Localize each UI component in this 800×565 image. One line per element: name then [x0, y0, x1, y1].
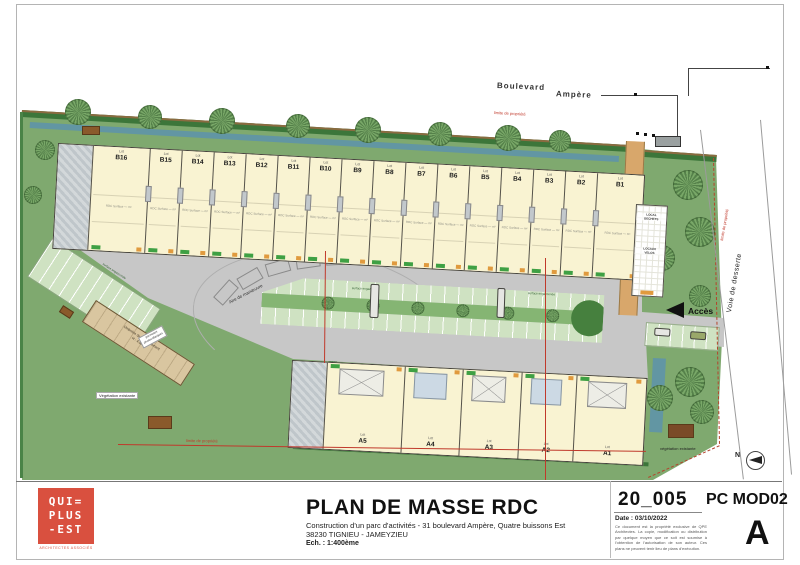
copyright-disclaimer: Ce document est la propriété exclusive d… [615, 524, 707, 551]
tree-icon [675, 367, 705, 397]
tree-icon [673, 170, 703, 200]
titleblock-separator [16, 481, 782, 482]
mezzanine-box [587, 381, 627, 409]
tree-icon [647, 385, 673, 411]
door-orange [200, 251, 205, 255]
annotation-dot [634, 93, 637, 96]
entrance-green [580, 377, 589, 381]
door-orange [168, 249, 173, 253]
door-orange [264, 254, 269, 258]
lot-unit-a4: LotA4 [400, 367, 462, 456]
project-description: Construction d'un parc d'activités - 31 … [306, 521, 565, 530]
property-line-mid-2 [545, 258, 546, 480]
stair-shaft [560, 209, 567, 225]
door-orange [513, 373, 518, 377]
mezzanine-box [413, 372, 447, 399]
document-date: Date : 03/10/2022 [615, 515, 667, 522]
existing-unit [289, 361, 327, 449]
entrance-green [212, 252, 221, 256]
entrance-green [500, 267, 509, 271]
door-orange [568, 376, 573, 380]
door-orange [636, 379, 641, 383]
architect-logo: QUI= PLUS -EST [38, 488, 94, 544]
truck-vehicle [369, 284, 379, 318]
median-tree-icon [411, 301, 425, 315]
door-orange [397, 367, 402, 371]
tree-icon [355, 117, 381, 143]
door-orange [552, 270, 557, 274]
door-orange [454, 370, 459, 374]
stair-shaft [528, 207, 535, 223]
north-label: N [735, 452, 740, 459]
drawing-title: PLAN DE MASSE RDC [306, 496, 539, 520]
stair-shaft [273, 193, 280, 209]
shed-box [148, 416, 172, 429]
stair-shaft [209, 190, 216, 206]
lot-unit-a2: LotA2 [517, 373, 576, 462]
vegetation-label-2: végétation existante [660, 446, 696, 451]
entrance-green [331, 364, 340, 368]
entrance-green [244, 253, 253, 257]
door-orange [424, 263, 429, 267]
median-tree-icon [456, 304, 470, 318]
annotation-line [677, 95, 678, 139]
stair-shaft [305, 195, 312, 211]
street-name-2: Ampère [556, 89, 592, 100]
entrance-green [409, 368, 418, 372]
entrance-green [596, 272, 605, 276]
titleblock-divider-h [614, 512, 702, 513]
stair-shaft [241, 191, 248, 207]
tree-icon [65, 99, 91, 125]
door-orange [488, 266, 493, 270]
stair-shaft [401, 200, 408, 216]
entrance-green [436, 264, 445, 268]
tree-icon [549, 130, 571, 152]
hedge-left [20, 112, 23, 478]
architect-logo-tagline: ARCHITECTES ASSOCIÉS [38, 546, 94, 550]
tree-icon [690, 400, 714, 424]
entrance-green [525, 374, 534, 378]
mezzanine-box [339, 368, 385, 396]
gate-dot [644, 133, 647, 136]
stair-shaft [145, 186, 152, 202]
shed-box [82, 126, 100, 135]
lot-unit-a5: LotA5 [323, 363, 405, 453]
access-arrow-icon [666, 302, 684, 318]
entrance-green [404, 262, 413, 266]
entrance-green [276, 255, 285, 259]
technical-rooms: LOCALDECHETS LOCAUXVELOS [631, 204, 668, 298]
tree-icon [495, 125, 521, 151]
project-location: 38230 TIGNIEU - JAMEYZIEU [306, 530, 408, 539]
entrance-green [564, 271, 573, 275]
lot-unit-a3: LotA3 [458, 370, 521, 459]
entrance-green [372, 260, 381, 264]
entrance-green [91, 245, 100, 249]
east-parking-strip [644, 322, 719, 351]
revision-letter: A [745, 514, 770, 553]
stair-shaft [464, 204, 471, 220]
entrance-green [532, 269, 541, 273]
annotation-line [688, 68, 770, 69]
annotation-dot [766, 66, 769, 69]
stair-shaft [496, 205, 503, 221]
document-number: 20_005 [618, 489, 687, 511]
entrance-green [180, 250, 189, 254]
door-orange [584, 272, 589, 276]
median-tree-icon [321, 296, 335, 310]
door-orange [360, 260, 365, 264]
stair-shaft [337, 197, 344, 213]
parked-car-2 [690, 331, 707, 340]
lot-unit-b16: LotB16RDC Surface — m² [87, 146, 150, 253]
door-orange [136, 247, 141, 251]
parked-car [654, 328, 671, 337]
existing-unit [53, 144, 93, 250]
property-limit-label-bottom: limite de propriété [186, 438, 218, 443]
entrance-green [468, 265, 477, 269]
document-code: PC MOD02 [706, 491, 788, 509]
entrance-green [466, 371, 475, 375]
tree-icon [35, 140, 55, 160]
annotation-line [688, 68, 689, 96]
signage-box [655, 136, 681, 147]
access-label: Accès [688, 306, 713, 316]
door-orange [328, 258, 333, 262]
tech-door [640, 290, 653, 295]
median-tree-icon [546, 309, 560, 323]
entrance-green [148, 248, 157, 252]
door-orange [296, 256, 301, 260]
north-arrow-icon [749, 456, 762, 464]
shed-box [668, 424, 694, 438]
stair-shaft [177, 188, 184, 204]
site-plan-page: Aire de manœuvre Ombrière de stationneme… [0, 0, 800, 565]
door-orange [232, 253, 237, 257]
stair-shaft [369, 198, 376, 214]
tree-icon [286, 114, 310, 138]
tree-icon [24, 186, 42, 204]
gate-dot [636, 132, 639, 135]
van-vehicle [496, 288, 505, 318]
door-orange [520, 268, 525, 272]
tree-icon [209, 108, 235, 134]
drawing-scale: Ech. : 1:400ème [306, 540, 359, 547]
stair-shaft [592, 210, 599, 226]
door-orange [392, 261, 397, 265]
tree-icon [689, 285, 711, 307]
mezzanine-box [471, 375, 506, 402]
tree-icon [138, 105, 162, 129]
stair-shaft [433, 202, 440, 218]
entrance-green [340, 258, 349, 262]
vegetation-label-1: Végétation existante [96, 392, 138, 399]
titleblock-divider [610, 481, 611, 558]
annotation-line [601, 95, 677, 96]
entrance-green [308, 257, 317, 261]
tree-icon [428, 122, 452, 146]
door-orange [456, 265, 461, 269]
